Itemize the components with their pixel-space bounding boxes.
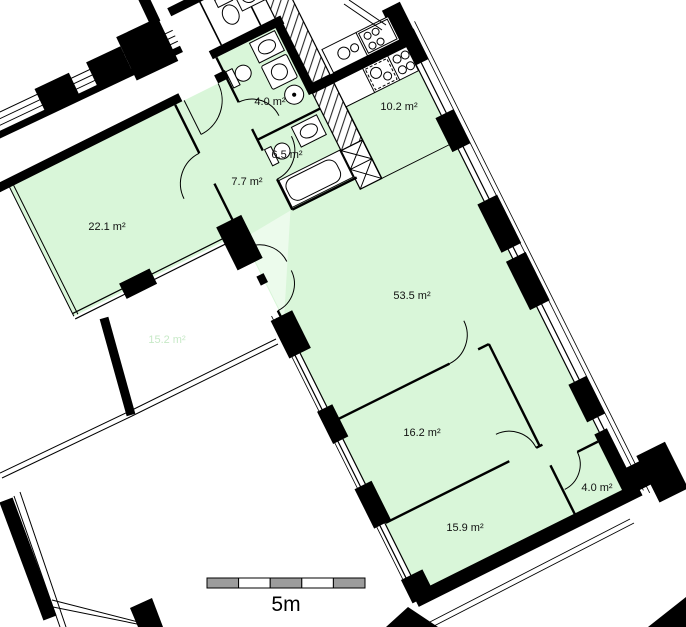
room-area-label: 4.0 m² <box>254 96 286 108</box>
room-area-label: 22.1 m² <box>88 221 126 233</box>
scale-bar-segment <box>239 578 271 588</box>
room-area-label: 6.5 m² <box>271 149 303 161</box>
scale-bar-segment <box>302 578 334 588</box>
scale-bar-segment <box>207 578 239 588</box>
floor-plan-canvas: 53.5 m² 22.1 m² 16.2 m² 15.9 m² 10.2 m² … <box>0 0 686 627</box>
room-area-label: 10.2 m² <box>380 101 418 113</box>
scale-bar-segment <box>333 578 365 588</box>
scale-bar-label: 5m <box>271 593 300 616</box>
room-area-label-muted: 15.2 m² <box>148 334 186 346</box>
room-area-label: 4.0 m² <box>581 482 613 494</box>
scale-bar-segment <box>270 578 302 588</box>
room-area-label: 7.7 m² <box>231 176 263 188</box>
room-area-label: 15.9 m² <box>446 522 484 534</box>
room-area-label: 16.2 m² <box>403 427 441 439</box>
floor-plan-page: 53.5 m² 22.1 m² 16.2 m² 15.9 m² 10.2 m² … <box>0 0 686 627</box>
room-area-label: 53.5 m² <box>393 290 431 302</box>
